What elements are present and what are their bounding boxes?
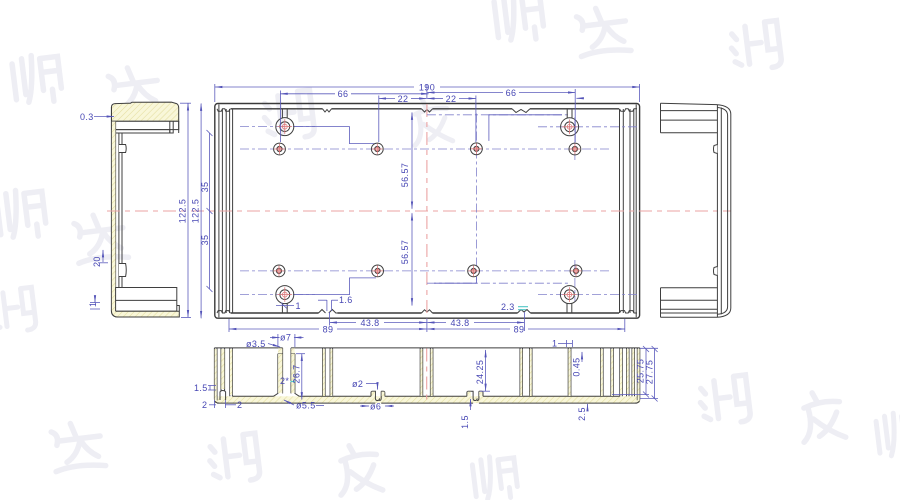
- svg-text:0.45: 0.45: [572, 357, 582, 376]
- svg-text:26.7: 26.7: [292, 364, 302, 383]
- svg-text:ø6: ø6: [370, 402, 381, 412]
- svg-text:43.8: 43.8: [450, 318, 469, 328]
- svg-text:22: 22: [446, 94, 457, 104]
- svg-text:89: 89: [514, 325, 525, 335]
- svg-text:1: 1: [552, 339, 557, 349]
- svg-text:ø5.5: ø5.5: [296, 401, 316, 411]
- svg-text:20: 20: [92, 256, 102, 267]
- svg-text:27.75: 27.75: [645, 360, 655, 385]
- svg-text:89: 89: [323, 325, 334, 335]
- svg-text:1.5: 1.5: [194, 383, 208, 393]
- svg-text:0.3: 0.3: [80, 112, 94, 122]
- svg-text:1.6: 1.6: [339, 295, 353, 305]
- svg-text:2*: 2*: [280, 376, 289, 386]
- svg-text:1.5: 1.5: [460, 415, 470, 429]
- svg-text:2: 2: [237, 400, 242, 410]
- svg-text:35: 35: [200, 235, 210, 246]
- svg-text:2: 2: [202, 400, 207, 410]
- svg-text:122.5: 122.5: [178, 199, 188, 224]
- svg-text:24.25: 24.25: [475, 360, 485, 385]
- svg-text:66: 66: [506, 88, 517, 98]
- svg-text:ø7: ø7: [280, 333, 291, 343]
- svg-text:2.5: 2.5: [577, 407, 587, 421]
- svg-text:35: 35: [200, 182, 210, 193]
- svg-text:2.3: 2.3: [501, 302, 515, 312]
- svg-text:56.57: 56.57: [400, 163, 410, 188]
- svg-text:43.8: 43.8: [360, 318, 379, 328]
- svg-text:1: 1: [296, 301, 301, 311]
- svg-text:ø2: ø2: [352, 379, 363, 389]
- svg-text:66: 66: [338, 89, 349, 99]
- svg-text:122.5: 122.5: [191, 199, 201, 224]
- svg-text:56.57: 56.57: [400, 240, 410, 265]
- svg-text:ø3.5: ø3.5: [246, 339, 266, 349]
- svg-text:22: 22: [398, 94, 409, 104]
